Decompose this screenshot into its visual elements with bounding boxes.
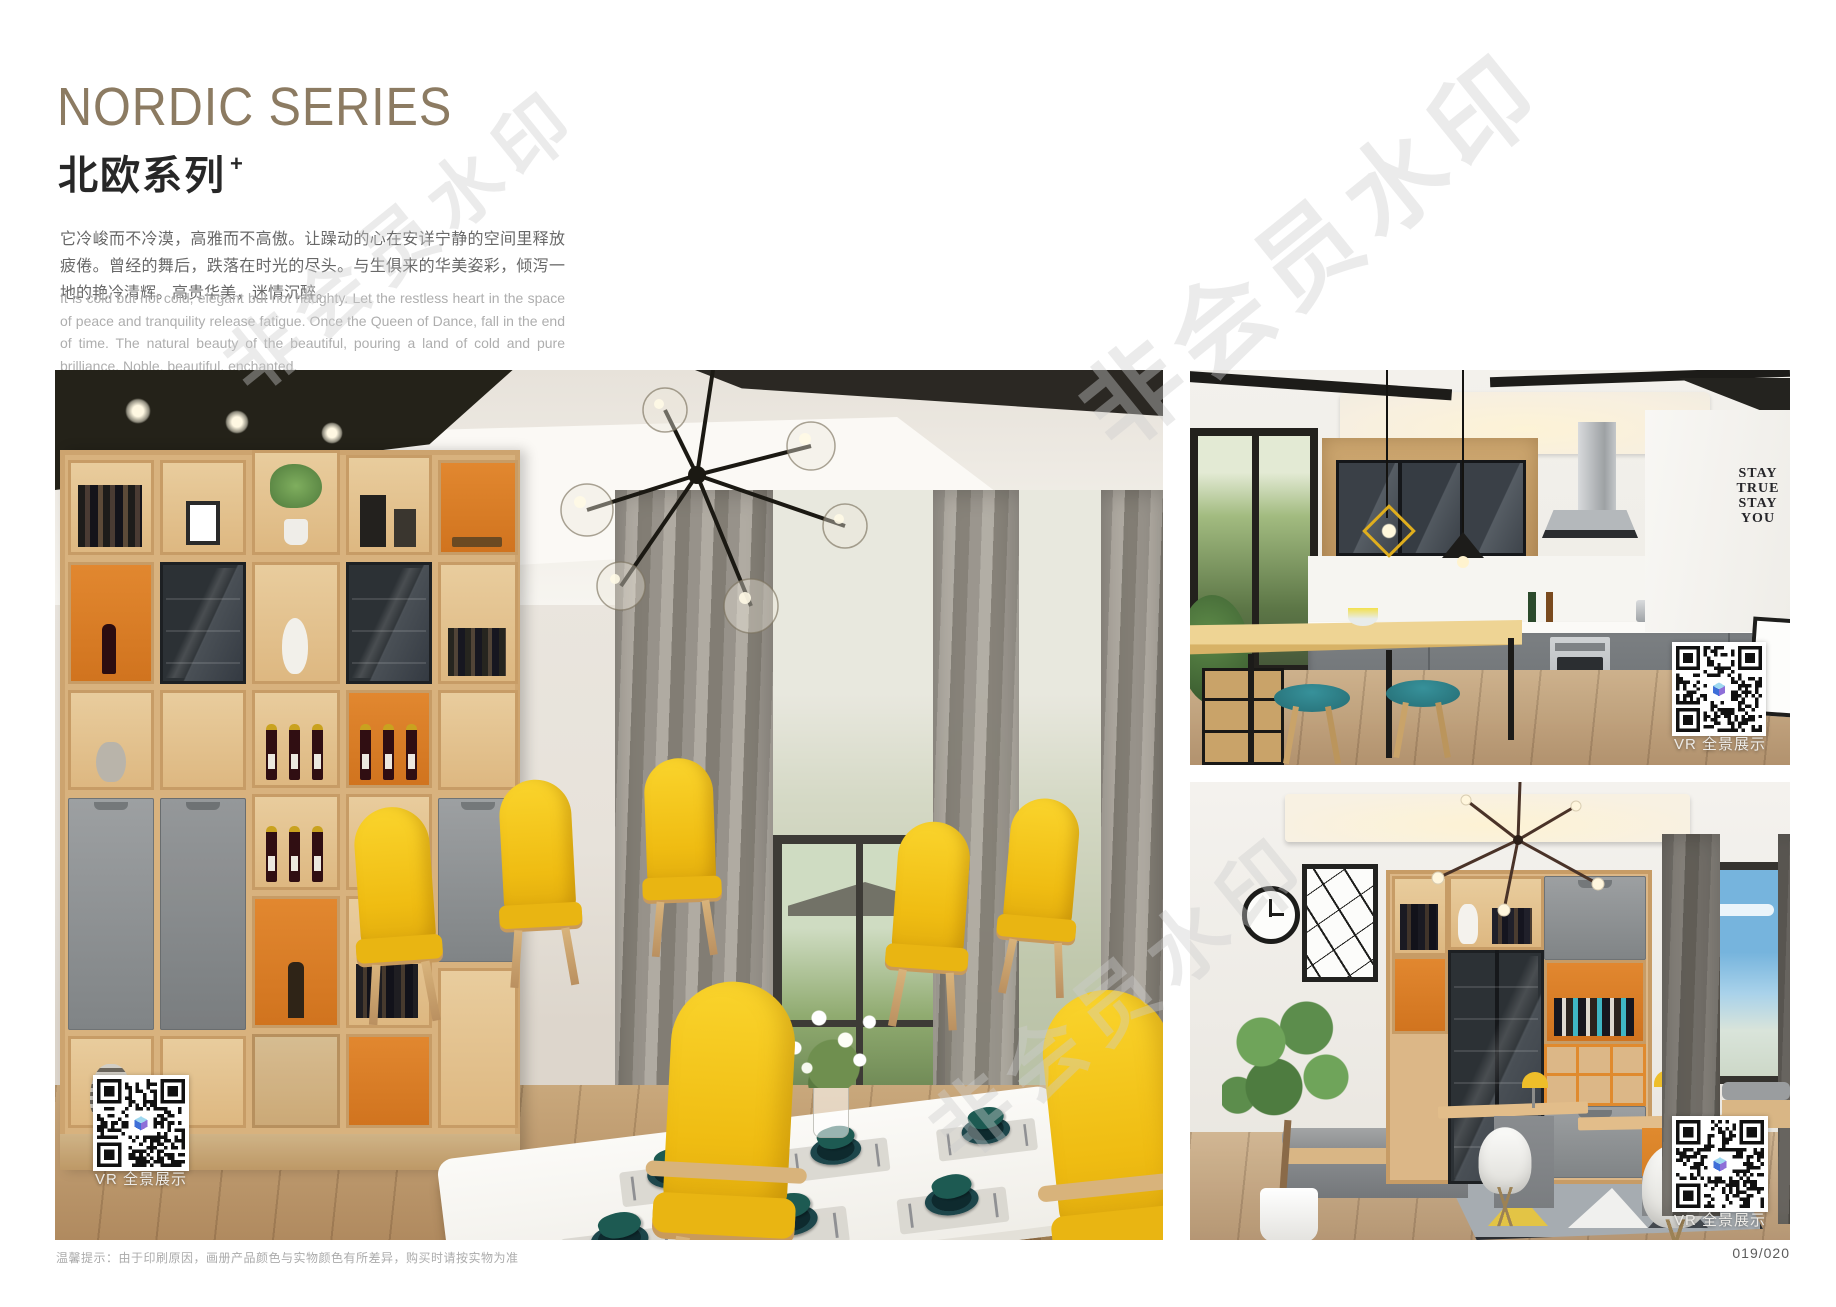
wine-bottle (312, 724, 323, 780)
dining-chair-yellow (638, 757, 724, 959)
wall-decal-stay-true: STAY TRUE STAY YOU (1728, 466, 1788, 526)
shelf-cell-books (438, 562, 518, 684)
pendant-wire (1386, 370, 1388, 518)
shelf-cell-wine (252, 794, 340, 890)
qr-code-dining (93, 1075, 189, 1171)
wine-bottle (289, 724, 300, 780)
spotlight (321, 422, 343, 444)
wine-bottle (360, 724, 371, 780)
shelf-cell (252, 562, 340, 684)
wall-clock (1242, 886, 1300, 944)
page-number: 019/020 (1732, 1245, 1790, 1261)
footer-note: 温馨提示：由于印刷原因，画册产品颜色与实物颜色有所差异，购买时请按实物为准 (56, 1249, 519, 1266)
flower-vase (813, 1084, 849, 1138)
counter-items (1520, 592, 1640, 626)
study-chandelier (1408, 782, 1628, 932)
abstract-art-frame (1302, 864, 1378, 982)
kitchen-wall-cabinet (1336, 460, 1526, 556)
shelf-cell-plant (252, 450, 340, 555)
pendant-wire (1462, 370, 1464, 538)
qr-code-study (1672, 1116, 1768, 1212)
shelf-gray-door (160, 798, 246, 1030)
catalog-page: NORDIC SERIES 北欧系列+ 它冷峻而不冷漠，高雅而不高傲。让躁动的心… (0, 0, 1836, 1307)
shelf-cell-wine (252, 690, 340, 788)
vr-label-kitchen: VR 全景展示 (1674, 733, 1766, 754)
dining-chair-yellow-front (1027, 983, 1163, 1240)
wine-bottle (266, 826, 277, 882)
wine-bottle (312, 826, 323, 882)
series-title-plus: + (230, 151, 243, 176)
shelf-cell-books (68, 460, 154, 555)
photo-kitchen: STAY TRUE STAY YOU VR 全景展示 (1190, 370, 1790, 765)
range-hood-chimney (1578, 422, 1616, 510)
series-title-en: NORDIC SERIES (57, 76, 452, 138)
dining-chair-yellow (346, 804, 447, 1028)
vr-label-dining: VR 全景展示 (95, 1168, 187, 1189)
wine-bottle (383, 724, 394, 780)
series-title-cn: 北欧系列 (58, 154, 226, 198)
potted-plant (1212, 1000, 1362, 1230)
shelf-cell (68, 690, 154, 790)
shelf-cell-orange (252, 896, 340, 1028)
spotlight (125, 398, 151, 424)
vr-label-study: VR 全景展示 (1674, 1209, 1766, 1230)
bar-stool-teal (1274, 684, 1350, 712)
photo-dining-room: VR 全景展示 (55, 370, 1163, 1240)
white-shell-chair (1479, 1127, 1532, 1231)
sputnik-chandelier (525, 370, 885, 680)
wine-bottle (266, 724, 277, 780)
shelf-cell (160, 690, 246, 790)
shelf-cell (252, 1034, 340, 1128)
island-leg (1508, 638, 1514, 740)
shelf-cell (438, 690, 518, 790)
shelf-cell-orange (438, 460, 518, 555)
shelf-cell (346, 455, 432, 555)
shelf-cell-glass-cabinet (346, 562, 432, 684)
island-leg (1248, 654, 1254, 764)
shelf-cell (438, 968, 518, 1128)
pendant-bulb (1457, 556, 1469, 568)
table-bowl (1348, 608, 1378, 626)
series-title-cn-row: 北欧系列+ (58, 143, 243, 201)
qr-code-kitchen (1672, 642, 1766, 736)
dining-chair-yellow (880, 819, 977, 1033)
spotlight (225, 410, 249, 434)
shelf-cell-wine (346, 690, 432, 788)
shelf-gray-door (68, 798, 154, 1030)
wine-bottle (406, 724, 417, 780)
photo-study: VR 全景展示 (1190, 782, 1790, 1240)
bar-stool-teal (1386, 680, 1460, 707)
wine-bottle (289, 826, 300, 882)
desk-lamp-yellow (1512, 1072, 1556, 1108)
range-hood-canopy (1542, 510, 1638, 538)
shelf-cell-orange (68, 562, 154, 684)
shelf-cell-orange (346, 1034, 432, 1128)
dining-chair-yellow-front (646, 978, 807, 1240)
study-curtain-right-edge (1778, 834, 1790, 1224)
cubby-grid-orange (1544, 1044, 1646, 1106)
dining-chair-yellow (492, 778, 586, 991)
shelf-cell (160, 460, 246, 555)
side-shelf-unit (1202, 668, 1284, 765)
series-description-en: It is cold but not cold, elegant but not… (60, 287, 565, 378)
island-leg (1386, 650, 1392, 758)
shelf-cell-glass-cabinet (160, 562, 246, 684)
dining-shelving-unit (60, 450, 520, 1170)
